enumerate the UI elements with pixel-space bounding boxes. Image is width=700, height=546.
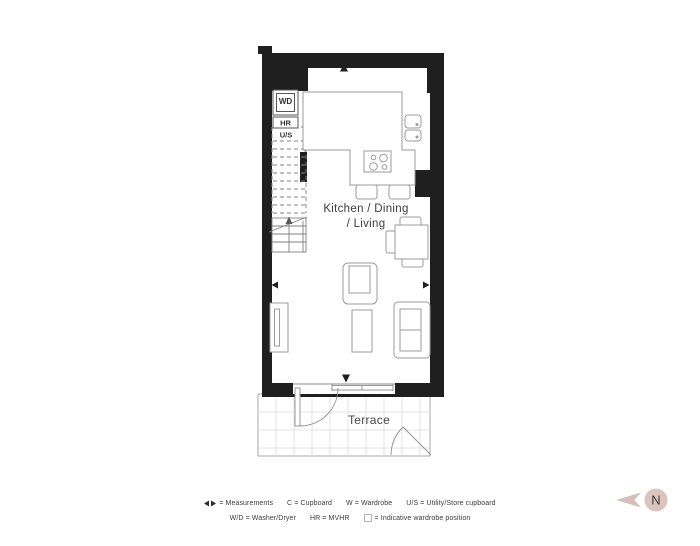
legend-item-indicative-wardrobe: = Indicative wardrobe position (364, 514, 471, 522)
legend-text: W/D = Washer/Dryer (230, 515, 296, 522)
measure-arrows-icon (204, 500, 216, 507)
legend-text: = Measurements (219, 500, 273, 507)
utility-store-label: U/S (280, 131, 293, 140)
terrace-area (258, 394, 430, 456)
legend-text: W = Wardrobe (346, 500, 392, 507)
mvhr-label: HR (280, 119, 291, 128)
legend-item-measurements: = Measurements (204, 500, 273, 507)
wall-top-right-block (427, 68, 430, 93)
washer-dryer-label: WD (279, 97, 293, 106)
floorplan-drawing: WD HR U/S (0, 0, 700, 546)
coffee-table (352, 310, 372, 352)
room-label-line2: / Living (347, 218, 386, 230)
bar-stool (356, 185, 377, 199)
legend-item-washer-dryer: W/D = Washer/Dryer (230, 515, 296, 522)
terrace-door-leaf (295, 388, 300, 426)
legend-row-1: = Measurements C = Cupboard W = Wardrobe… (0, 500, 700, 507)
legend-item-utility-store: U/S = Utility/Store cupboard (406, 500, 495, 507)
bar-stool (389, 185, 410, 199)
hob (364, 151, 391, 172)
legend-text: HR = MVHR (310, 515, 350, 522)
dining-table (395, 225, 428, 259)
wardrobe-square-icon (364, 514, 372, 522)
legend-row-2: W/D = Washer/Dryer HR = MVHR = Indicativ… (0, 514, 700, 522)
appliance-lower (405, 130, 421, 141)
legend-text: U/S = Utility/Store cupboard (406, 500, 495, 507)
legend-item-wardrobe: W = Wardrobe (346, 500, 392, 507)
legend-item-cupboard: C = Cupboard (287, 500, 332, 507)
appliance-knob (416, 136, 418, 138)
legend-text: C = Cupboard (287, 500, 332, 507)
glazed-panel (332, 386, 393, 391)
wall-top-notch (258, 46, 272, 54)
appliance-upper (405, 115, 421, 128)
appliance-knob (416, 124, 418, 126)
wall-right-protrusion (415, 170, 430, 197)
room-label-line1: Kitchen / Dining (323, 203, 408, 215)
media-unit-tv (275, 309, 280, 346)
terrace-label: Terrace (348, 413, 390, 427)
legend-text: = Indicative wardrobe position (375, 515, 471, 522)
wall-top-left-block (272, 68, 308, 91)
floorplan-page: WD HR U/S (0, 0, 700, 546)
legend-item-mvhr: HR = MVHR (310, 515, 350, 522)
armchair-cushion (349, 266, 370, 293)
